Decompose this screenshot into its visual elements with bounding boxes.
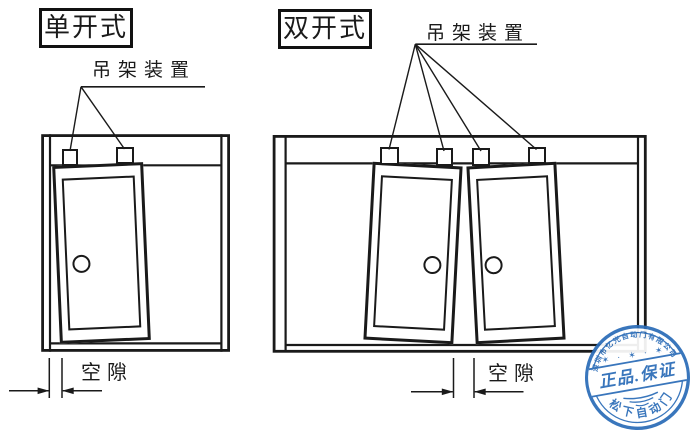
double-door-left: [363, 162, 462, 344]
double-door-left-knob-icon: [423, 255, 442, 274]
hanger-device-icon: [472, 148, 490, 167]
single-door-panel: [61, 175, 141, 330]
single-hanger-leaders: [70, 87, 205, 151]
hanger-device-icon: [436, 148, 454, 166]
hanger-device-icon: [62, 149, 78, 166]
double-door-right-panel: [476, 175, 556, 331]
single-type-title: 单开式: [39, 8, 133, 48]
single-door-knob-icon: [72, 254, 91, 273]
double-gap-label: 空隙: [488, 364, 540, 384]
hanger-device-icon: [116, 147, 134, 164]
double-type-title: 双开式: [278, 9, 372, 49]
single-door: [52, 162, 151, 344]
double-hanger-label: 吊架装置: [426, 24, 530, 43]
double-door-left-panel: [373, 175, 453, 331]
single-hanger-label: 吊架装置: [92, 61, 196, 80]
single-type-title-text: 单开式: [44, 15, 128, 41]
single-gap-label: 空隙: [81, 363, 133, 383]
double-door-right: [466, 162, 565, 344]
hanger-device-icon: [528, 147, 546, 164]
double-type-title-text: 双开式: [283, 16, 367, 42]
certification-stamp: ✶ · ✶ · ✶ 正品.保证 深圳市亿光自动门有限公司 松下自动门: [571, 311, 693, 436]
hanger-device-icon: [380, 147, 399, 166]
sliding-door-diagram: 单开式 双开式 吊架装置 吊架装置 空隙 空隙 ✶ · ✶ · ✶ 正品.保证: [0, 0, 693, 436]
double-hanger-leaders: [389, 44, 537, 151]
double-door-right-knob-icon: [483, 255, 502, 274]
